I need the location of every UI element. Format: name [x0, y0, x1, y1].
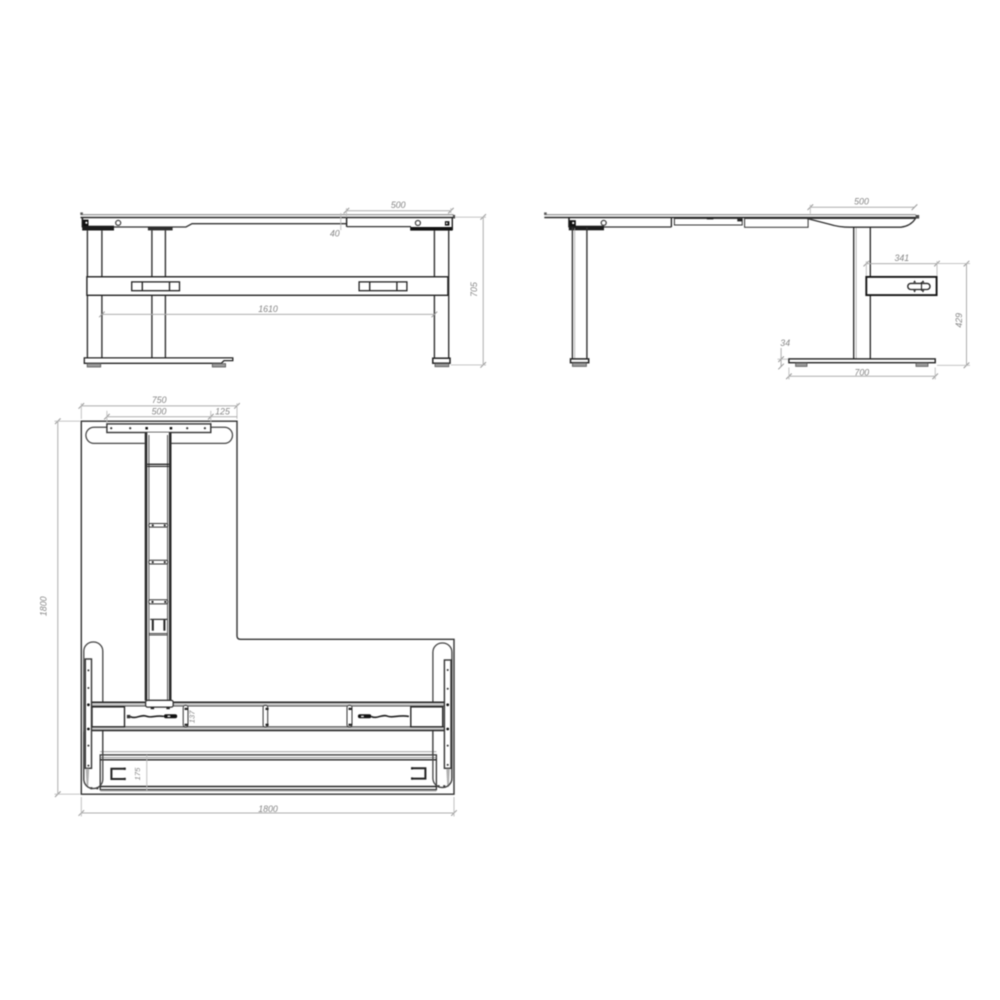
svg-text:34: 34 [780, 338, 790, 348]
svg-text:40: 40 [330, 229, 340, 239]
svg-text:341: 341 [894, 253, 909, 263]
svg-text:700: 700 [854, 367, 869, 377]
svg-text:137: 137 [187, 710, 196, 723]
svg-text:500: 500 [391, 200, 406, 210]
svg-text:1610: 1610 [258, 304, 278, 314]
svg-text:750: 750 [152, 395, 167, 405]
svg-text:1800: 1800 [258, 804, 278, 814]
svg-text:429: 429 [954, 313, 964, 328]
svg-text:500: 500 [854, 197, 869, 207]
svg-text:500: 500 [152, 407, 167, 417]
svg-text:175: 175 [133, 767, 142, 780]
svg-text:705: 705 [469, 282, 479, 297]
svg-text:125: 125 [215, 407, 230, 417]
svg-text:1800: 1800 [38, 596, 48, 616]
